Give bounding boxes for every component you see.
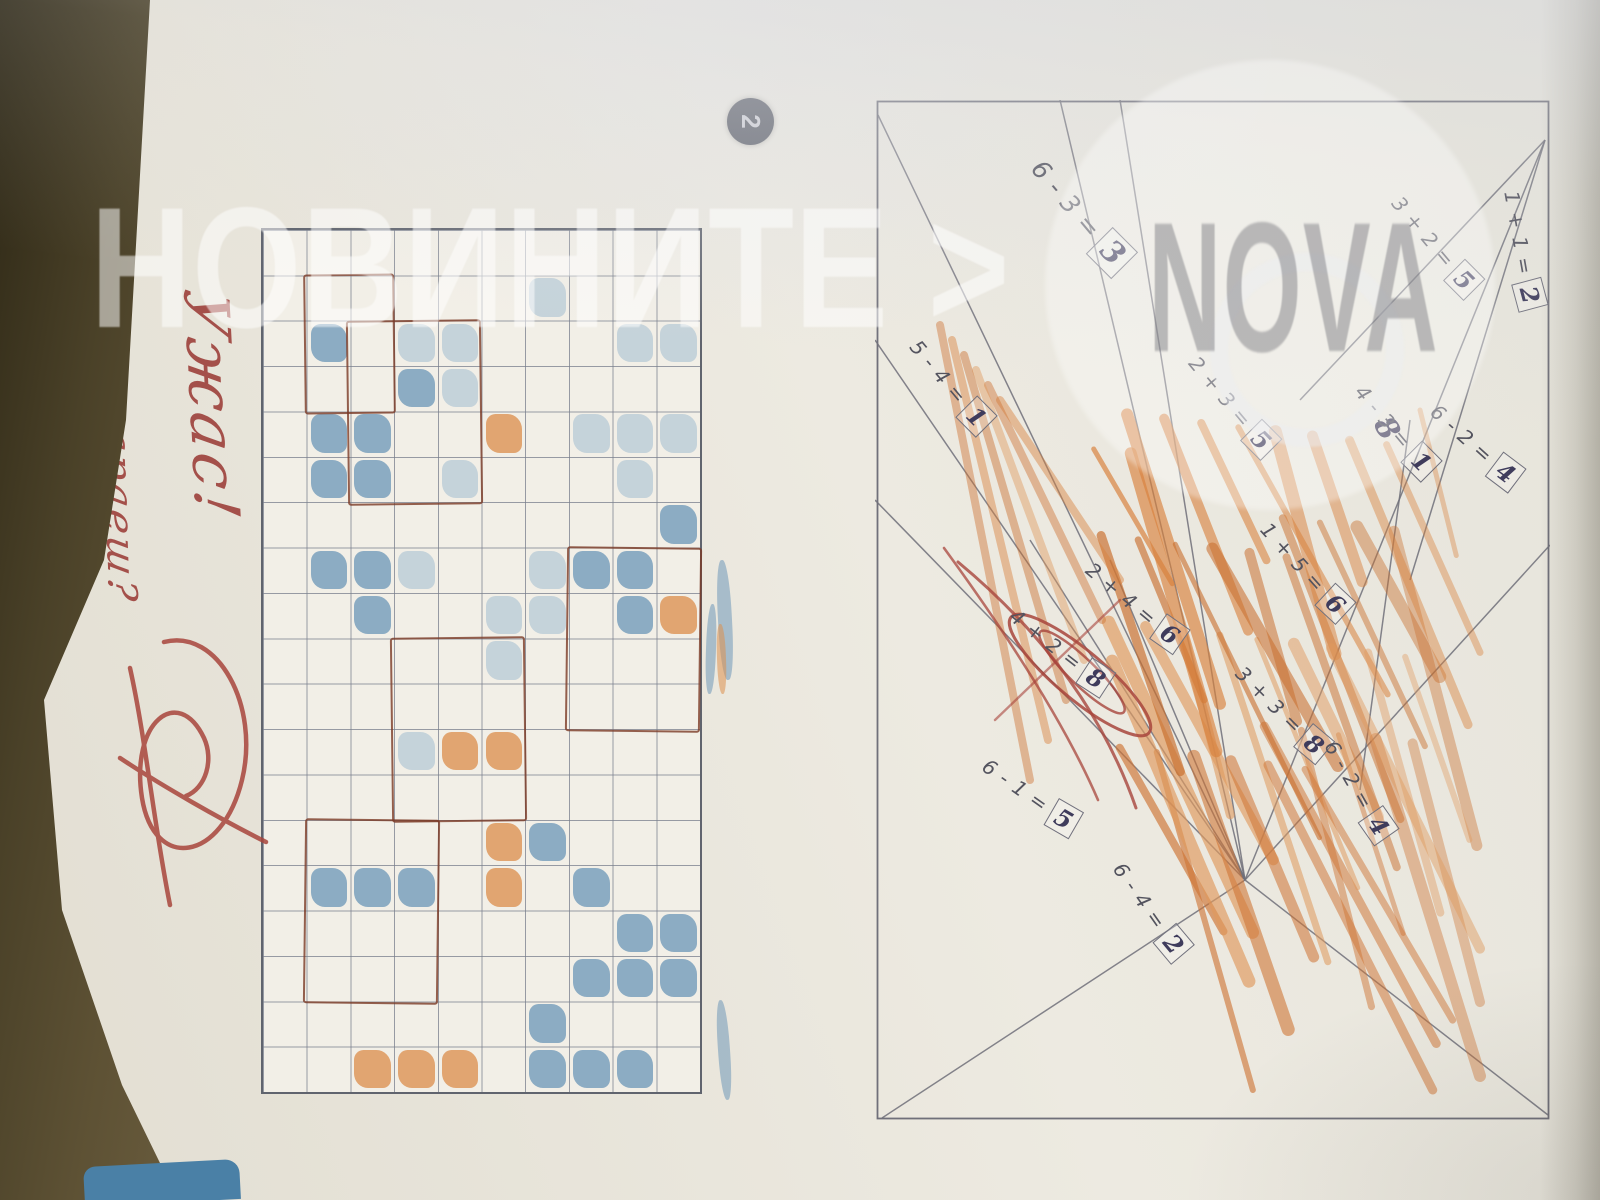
grid-cell-blue <box>354 551 391 589</box>
grid-cell-orange <box>442 1050 479 1088</box>
grid-cell-orange <box>486 823 523 861</box>
grid-cell-blue <box>573 959 610 997</box>
grid-cell-blue <box>398 551 435 589</box>
grid-cell-orange <box>398 1050 435 1088</box>
grid-cell-blue <box>573 868 610 906</box>
grid-cell-orange <box>354 1050 391 1088</box>
crayon-spill <box>715 1000 734 1101</box>
exercise-number-badge: 2 <box>727 98 774 145</box>
grid-cell-blue <box>617 959 654 997</box>
grid-cell-blue <box>660 414 697 452</box>
coloring-grid <box>261 228 702 1094</box>
grid-cell-blue <box>529 1050 566 1088</box>
photo-of-workbook-page: 8 1 + 1 =23 + 2 =54 - 3 =16 - 2 =46 - 3 … <box>0 0 1600 1200</box>
page-spine-shadow <box>1540 0 1600 1200</box>
workbook-page: 8 1 + 1 =23 + 2 =54 - 3 =16 - 2 =46 - 3 … <box>0 0 1600 1200</box>
pencil-outline-rect <box>303 818 440 1005</box>
grid-cell-orange <box>486 414 523 452</box>
pencil-outline-rect <box>390 636 527 823</box>
grid-cell-blue <box>617 324 654 362</box>
grid-cell-blue <box>573 1050 610 1088</box>
grid-cell-blue <box>529 823 566 861</box>
grid-cell-blue <box>660 505 697 543</box>
grid-cell-blue <box>573 414 610 452</box>
grid-cell-blue <box>529 278 566 316</box>
grid-cell-blue <box>617 414 654 452</box>
grid-cell-blue <box>311 551 348 589</box>
crayon-spill <box>704 604 717 694</box>
math-triangle-puzzle: 8 1 + 1 =23 + 2 =54 - 3 =16 - 2 =46 - 3 … <box>875 100 1550 1120</box>
grid-cell-blue <box>529 551 566 589</box>
grid-cell-orange <box>486 868 523 906</box>
grid-cell-blue <box>354 596 391 634</box>
grid-cell-blue <box>486 596 523 634</box>
grid-cell-blue <box>617 460 654 498</box>
teacher-note-line1: Ужас! <box>169 285 254 526</box>
grid-cell-blue <box>311 414 348 452</box>
grid-cell-blue <box>617 1050 654 1088</box>
grid-cell-blue <box>311 460 348 498</box>
grid-cell-blue <box>660 914 697 952</box>
grid-cell-blue <box>529 596 566 634</box>
grid-cell-blue <box>529 1004 566 1042</box>
red-pen-flourish <box>97 610 282 940</box>
grid-cell-blue <box>617 914 654 952</box>
grid-cell-blue <box>660 324 697 362</box>
pencil-outline-rect <box>303 274 396 415</box>
blue-bookmark <box>83 1159 241 1200</box>
pencil-outline-rect <box>565 546 702 733</box>
grid-cell-blue <box>660 959 697 997</box>
